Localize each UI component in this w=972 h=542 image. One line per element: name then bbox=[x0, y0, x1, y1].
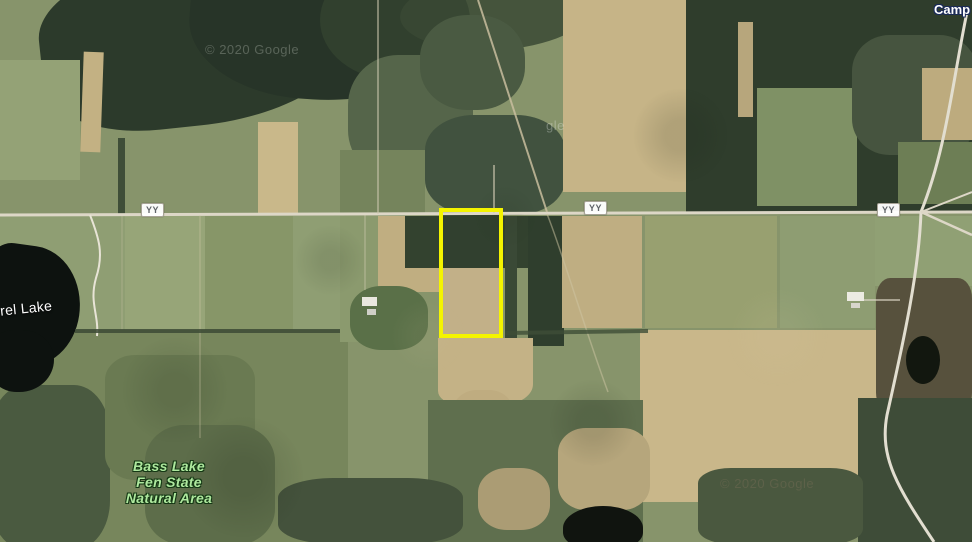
field-patch bbox=[0, 60, 80, 180]
pond-water bbox=[563, 506, 643, 542]
field-patch bbox=[80, 52, 103, 153]
field-patch bbox=[898, 142, 972, 204]
field-patch bbox=[563, 0, 693, 192]
forest-patch bbox=[858, 398, 972, 542]
road-badge-label: YY bbox=[882, 205, 895, 215]
parcel-highlight[interactable] bbox=[439, 208, 503, 338]
scrub-patch bbox=[420, 15, 525, 110]
forest-patch bbox=[528, 216, 564, 346]
farm-building bbox=[847, 292, 864, 301]
field-patch bbox=[340, 150, 425, 215]
natural-area-label: Bass Lake Fen State Natural Area bbox=[88, 458, 250, 506]
tree-line bbox=[505, 331, 648, 333]
road-badge-yy: YY bbox=[141, 203, 164, 217]
field-patch bbox=[738, 22, 753, 117]
forest-patch bbox=[278, 478, 463, 542]
tree-line bbox=[505, 216, 517, 342]
road-badge-yy: YY bbox=[584, 201, 607, 215]
road-badge-label: YY bbox=[589, 203, 602, 213]
field-patch bbox=[875, 216, 972, 286]
natural-area-label-line: Fen State bbox=[88, 474, 250, 490]
field-patch bbox=[478, 468, 550, 530]
satellite-map-canvas[interactable]: YY YY YY rel Lake Bass Lake Fen State Na… bbox=[0, 0, 972, 542]
scrub-patch bbox=[425, 115, 565, 215]
camp-label: Camp bbox=[934, 2, 970, 17]
field-patch bbox=[205, 216, 293, 331]
field-patch bbox=[258, 122, 298, 215]
natural-area-label-line: Bass Lake bbox=[88, 458, 250, 474]
farm-building bbox=[362, 297, 377, 306]
farm-building bbox=[851, 303, 860, 308]
natural-area-label-line: Natural Area bbox=[88, 490, 250, 506]
field-patch bbox=[645, 216, 777, 328]
farm-building bbox=[367, 309, 376, 315]
road-badge-label: YY bbox=[146, 205, 159, 215]
field-patch bbox=[125, 216, 205, 331]
road-badge-yy: YY bbox=[877, 203, 900, 217]
field-patch bbox=[780, 216, 875, 328]
field-patch bbox=[922, 68, 972, 140]
farmstead bbox=[350, 286, 428, 350]
field-patch bbox=[558, 428, 650, 510]
field-patch bbox=[757, 88, 857, 206]
forest-patch bbox=[698, 468, 863, 542]
pond-water bbox=[906, 336, 940, 384]
tree-line bbox=[118, 138, 125, 215]
field-patch bbox=[562, 216, 642, 328]
